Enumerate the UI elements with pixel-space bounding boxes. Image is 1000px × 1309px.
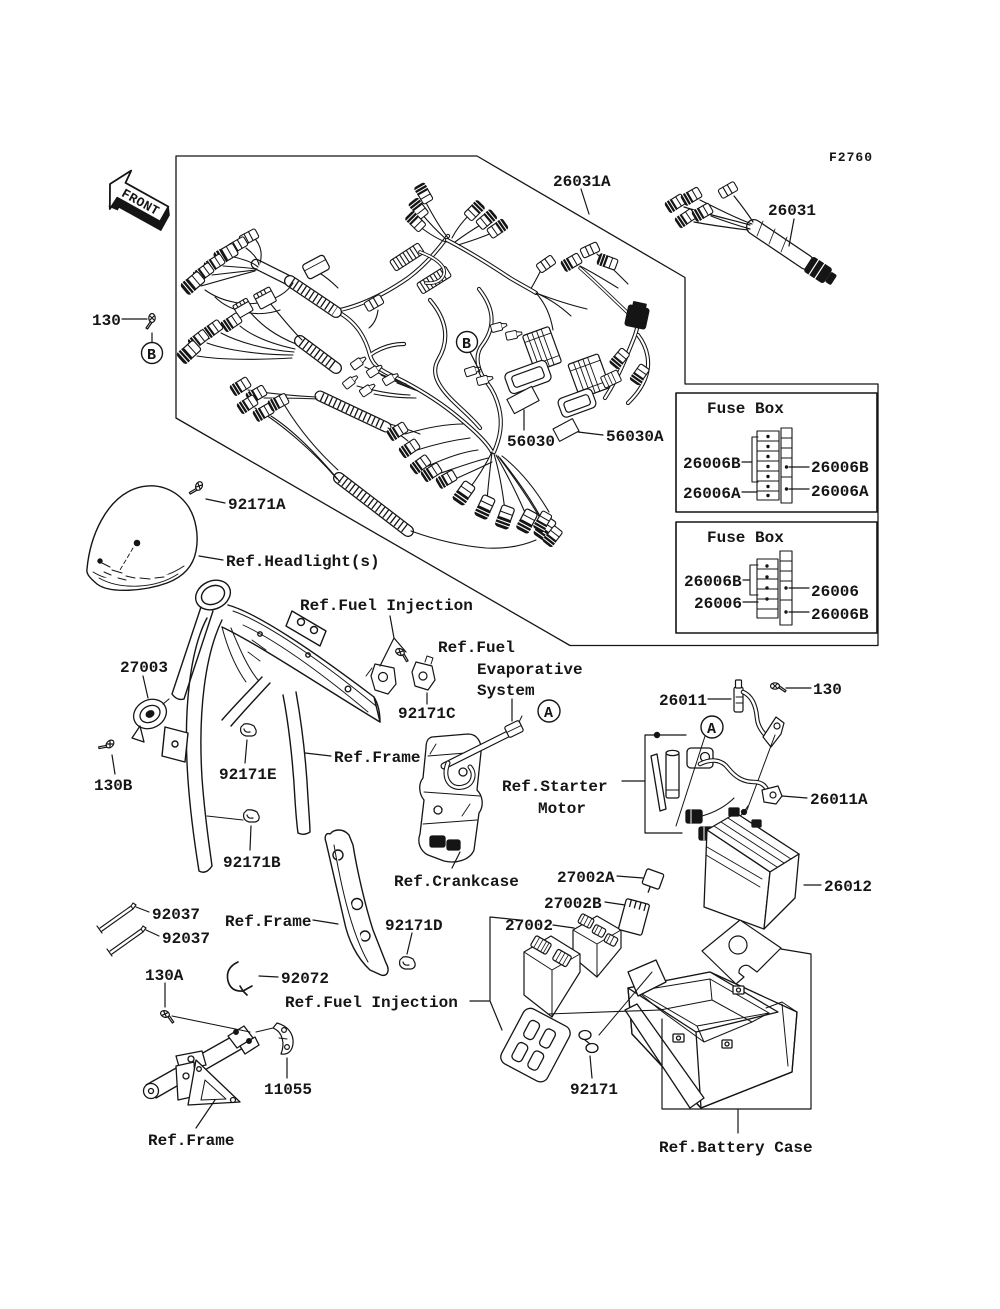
svg-text:26006A: 26006A bbox=[683, 485, 741, 503]
svg-text:130A: 130A bbox=[145, 967, 184, 985]
svg-text:92171: 92171 bbox=[570, 1081, 618, 1099]
svg-text:B: B bbox=[147, 347, 156, 364]
svg-text:26012: 26012 bbox=[824, 878, 872, 896]
svg-text:26031: 26031 bbox=[768, 202, 816, 220]
svg-text:System: System bbox=[477, 682, 535, 700]
svg-text:Ref.Frame: Ref.Frame bbox=[148, 1132, 234, 1150]
svg-text:Ref.Fuel Injection: Ref.Fuel Injection bbox=[285, 994, 458, 1012]
svg-text:92037: 92037 bbox=[162, 930, 210, 948]
svg-text:92072: 92072 bbox=[281, 970, 329, 988]
svg-text:56030: 56030 bbox=[507, 433, 555, 451]
svg-text:Ref.Starter: Ref.Starter bbox=[502, 778, 608, 796]
svg-text:130: 130 bbox=[813, 681, 842, 699]
svg-text:Ref.Fuel Injection: Ref.Fuel Injection bbox=[300, 597, 473, 615]
svg-text:26011A: 26011A bbox=[810, 791, 868, 809]
svg-text:26011: 26011 bbox=[659, 692, 707, 710]
svg-text:B: B bbox=[462, 336, 471, 353]
svg-text:92171E: 92171E bbox=[219, 766, 277, 784]
svg-text:Motor: Motor bbox=[538, 800, 586, 818]
svg-text:130B: 130B bbox=[94, 777, 133, 795]
svg-text:A: A bbox=[707, 721, 716, 738]
svg-text:Ref.Fuel: Ref.Fuel bbox=[438, 639, 515, 657]
svg-text:Evaporative: Evaporative bbox=[477, 661, 583, 679]
svg-text:26031A: 26031A bbox=[553, 173, 611, 191]
svg-text:Ref.Battery Case: Ref.Battery Case bbox=[659, 1139, 813, 1157]
svg-text:56030A: 56030A bbox=[606, 428, 664, 446]
svg-text:A: A bbox=[544, 705, 553, 722]
svg-text:92171D: 92171D bbox=[385, 917, 443, 935]
svg-text:F2760: F2760 bbox=[829, 150, 873, 165]
svg-text:130: 130 bbox=[92, 312, 121, 330]
svg-text:26006: 26006 bbox=[811, 583, 859, 601]
svg-text:92171A: 92171A bbox=[228, 496, 286, 514]
svg-text:92037: 92037 bbox=[152, 906, 200, 924]
svg-text:26006B: 26006B bbox=[684, 573, 742, 591]
svg-text:Ref.Frame: Ref.Frame bbox=[334, 749, 420, 767]
svg-text:26006B: 26006B bbox=[683, 455, 741, 473]
svg-text:92171C: 92171C bbox=[398, 705, 456, 723]
svg-text:Ref.Frame: Ref.Frame bbox=[225, 913, 311, 931]
svg-text:26006B: 26006B bbox=[811, 459, 869, 477]
svg-text:27002A: 27002A bbox=[557, 869, 615, 887]
svg-text:26006A: 26006A bbox=[811, 483, 869, 501]
svg-text:92171B: 92171B bbox=[223, 854, 281, 872]
svg-text:Fuse Box: Fuse Box bbox=[707, 400, 784, 418]
svg-text:27002B: 27002B bbox=[544, 895, 602, 913]
svg-text:26006: 26006 bbox=[694, 595, 742, 613]
svg-text:Ref.Crankcase: Ref.Crankcase bbox=[394, 873, 519, 891]
svg-text:Fuse Box: Fuse Box bbox=[707, 529, 784, 547]
svg-text:26006B: 26006B bbox=[811, 606, 869, 624]
svg-text:Ref.Headlight(s): Ref.Headlight(s) bbox=[226, 553, 380, 571]
svg-text:11055: 11055 bbox=[264, 1081, 312, 1099]
svg-text:27003: 27003 bbox=[120, 659, 168, 677]
